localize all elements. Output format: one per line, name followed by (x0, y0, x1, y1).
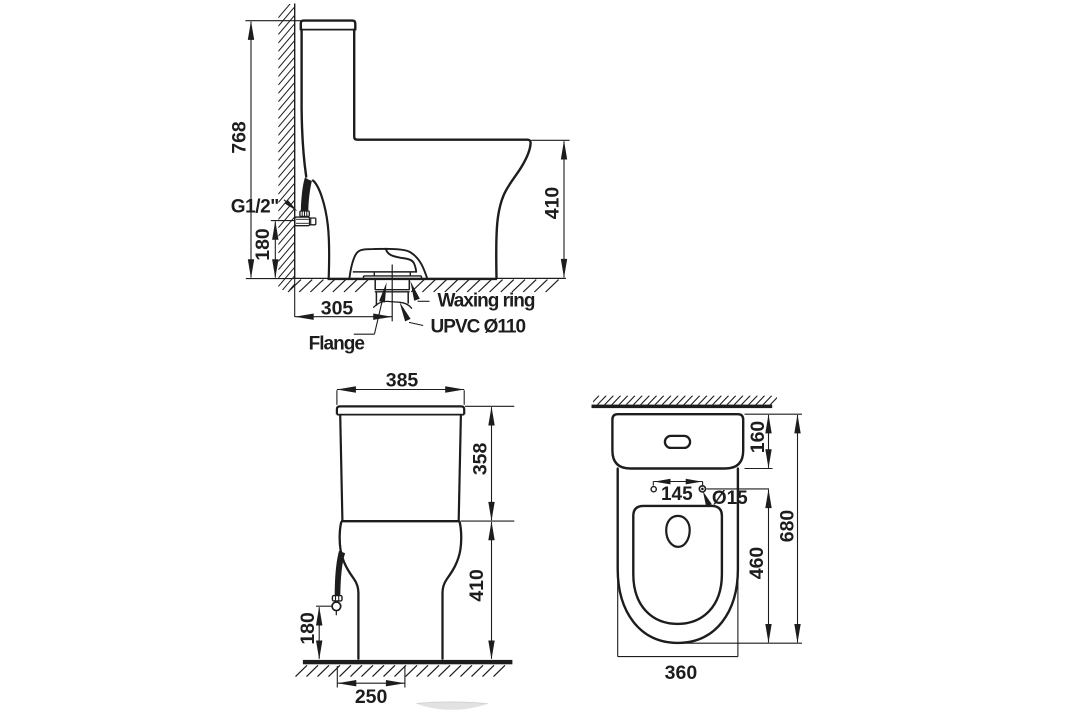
svg-text:UPVC Ø110: UPVC Ø110 (431, 316, 526, 337)
svg-text:G1/2": G1/2" (231, 197, 279, 218)
svg-text:680: 680 (777, 510, 799, 543)
svg-text:385: 385 (386, 370, 419, 392)
svg-text:460: 460 (746, 547, 768, 580)
svg-text:Ø15: Ø15 (712, 488, 748, 509)
svg-text:160: 160 (747, 421, 769, 454)
svg-text:180: 180 (297, 612, 319, 645)
svg-text:Flange: Flange (309, 334, 365, 355)
svg-text:410: 410 (542, 187, 564, 220)
svg-text:360: 360 (665, 662, 698, 684)
svg-text:250: 250 (355, 686, 388, 708)
svg-text:410: 410 (466, 569, 488, 602)
svg-text:358: 358 (470, 442, 492, 475)
svg-text:305: 305 (321, 298, 354, 320)
svg-text:Waxing ring: Waxing ring (437, 291, 534, 312)
svg-text:180: 180 (252, 228, 274, 261)
svg-text:145: 145 (661, 484, 693, 505)
svg-text:768: 768 (229, 121, 251, 154)
